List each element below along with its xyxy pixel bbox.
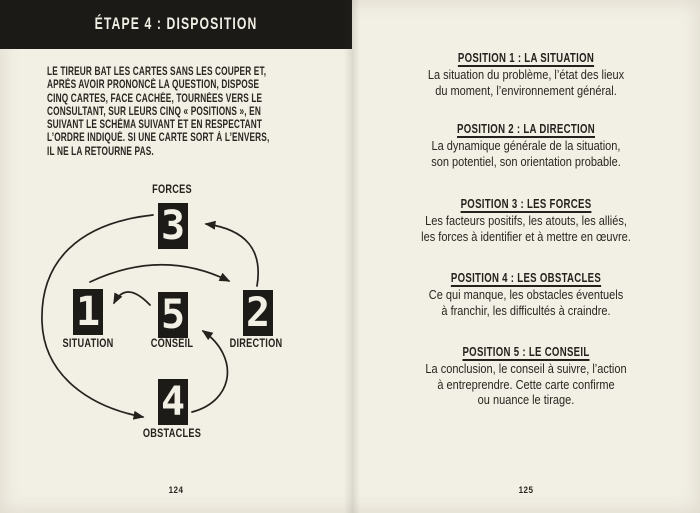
position-body-line: du moment, l’environnement général. bbox=[383, 84, 668, 100]
card-4-obstacles: 4 bbox=[158, 379, 188, 425]
card-label-situation: SITUATION bbox=[44, 338, 132, 350]
position-section-3: POSITION 3 : LES FORCES Les facteurs pos… bbox=[364, 196, 688, 245]
page-right: POSITION 1 : LA SITUATION La situation d… bbox=[352, 0, 700, 513]
position-heading: POSITION 2 : LA DIRECTION bbox=[406, 121, 646, 137]
card-3-forces: 3 bbox=[158, 203, 188, 249]
position-section-2: POSITION 2 : LA DIRECTION La dynamique g… bbox=[364, 121, 688, 170]
card-number: 3 bbox=[161, 203, 185, 249]
card-number: 2 bbox=[246, 290, 270, 336]
card-1-situation: 1 bbox=[73, 289, 103, 335]
card-number: 5 bbox=[161, 292, 185, 338]
arrow-1-to-2 bbox=[90, 265, 229, 282]
card-layout-diagram: FORCES 3 1 5 2 4 SITUATION CONSEIL DIREC… bbox=[0, 0, 352, 513]
card-number: 1 bbox=[76, 289, 100, 335]
position-body-line: Ce qui manque, les obstacles éventuels bbox=[383, 288, 668, 304]
position-body-line: La conclusion, le conseil à suivre, l’ac… bbox=[383, 362, 668, 378]
position-body-line: La dynamique générale de la situation, bbox=[383, 139, 668, 155]
position-body-line: son potentiel, son orientation probable. bbox=[383, 155, 668, 171]
page-left: ÉTAPE 4 : DISPOSITION LE TIREUR BAT LES … bbox=[0, 0, 352, 513]
position-section-5: POSITION 5 : LE CONSEIL La conclusion, l… bbox=[364, 344, 688, 409]
position-section-4: POSITION 4 : LES OBSTACLES Ce qui manque… bbox=[364, 270, 688, 319]
card-label-forces: FORCES bbox=[128, 184, 216, 196]
position-section-1: POSITION 1 : LA SITUATION La situation d… bbox=[364, 50, 688, 99]
position-heading: POSITION 4 : LES OBSTACLES bbox=[406, 270, 646, 286]
position-heading: POSITION 1 : LA SITUATION bbox=[406, 50, 646, 66]
position-body-line: Les facteurs positifs, les atouts, les a… bbox=[383, 214, 668, 230]
position-heading: POSITION 3 : LES FORCES bbox=[406, 196, 646, 212]
position-body-line: La situation du problème, l’état des lie… bbox=[383, 68, 668, 84]
arrow-5-to-1 bbox=[114, 292, 150, 305]
card-label-obstacles: OBSTACLES bbox=[128, 428, 216, 440]
card-number: 4 bbox=[161, 379, 185, 425]
position-body-line: ou nuance le tirage. bbox=[383, 393, 668, 409]
card-label-conseil: CONSEIL bbox=[128, 338, 216, 350]
card-2-direction: 2 bbox=[243, 290, 273, 336]
card-5-conseil: 5 bbox=[158, 292, 188, 338]
arrow-2-to-3 bbox=[206, 224, 258, 286]
page-number-right: 125 bbox=[378, 485, 674, 496]
card-label-direction: DIRECTION bbox=[212, 338, 300, 350]
position-body-line: à franchir, les difficultés à craindre. bbox=[383, 304, 668, 320]
position-body-line: les forces à identifier et à mettre en œ… bbox=[383, 230, 668, 246]
position-body-line: à entreprendre. Cette carte confirme bbox=[383, 378, 668, 394]
page-number-left: 124 bbox=[26, 485, 325, 496]
position-heading: POSITION 5 : LE CONSEIL bbox=[406, 344, 646, 360]
book-spread: ÉTAPE 4 : DISPOSITION LE TIREUR BAT LES … bbox=[0, 0, 700, 513]
